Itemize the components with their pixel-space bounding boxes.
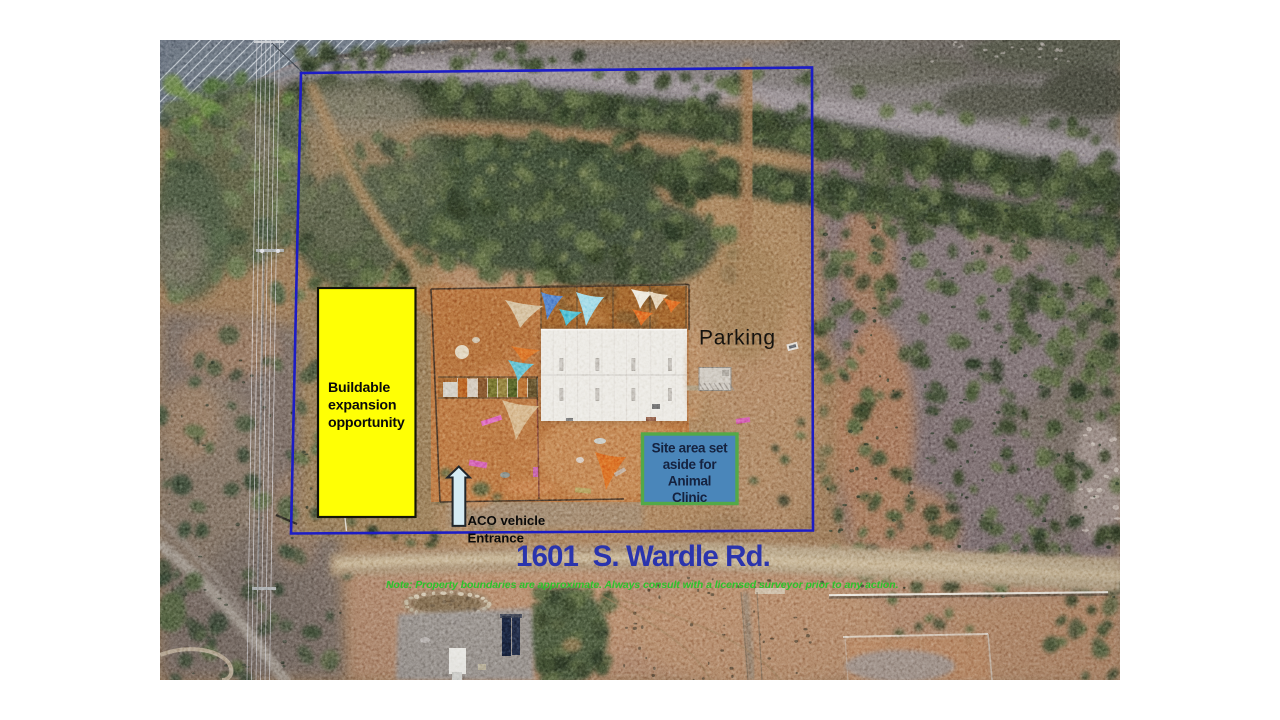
svg-text:Note: Property boundaries are: Note: Property boundaries are approximat… xyxy=(386,580,899,591)
svg-text:Clinic: Clinic xyxy=(672,490,708,505)
svg-text:Parking: Parking xyxy=(699,327,776,350)
svg-text:1601 S. Wardle Rd.: 1601 S. Wardle Rd. xyxy=(516,540,770,573)
svg-text:opportunity: opportunity xyxy=(328,415,405,431)
svg-text:Site area set: Site area set xyxy=(652,440,728,455)
svg-text:ACO vehicle: ACO vehicle xyxy=(468,513,546,528)
svg-text:Animal: Animal xyxy=(668,474,711,489)
svg-text:Buildable: Buildable xyxy=(328,380,390,396)
svg-text:aside for: aside for xyxy=(663,457,718,472)
svg-text:expansion: expansion xyxy=(328,398,396,414)
